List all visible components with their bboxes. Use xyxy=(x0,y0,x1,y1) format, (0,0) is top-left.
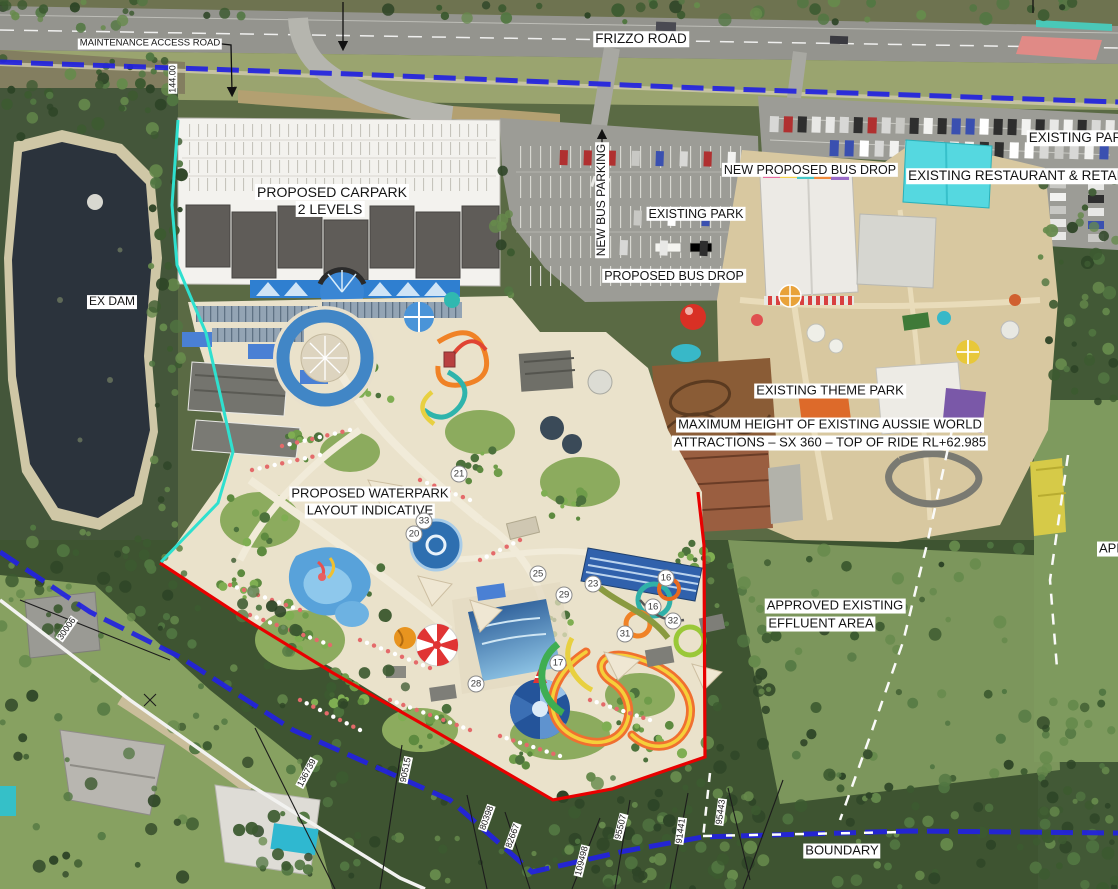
kids-pool-2 xyxy=(335,601,369,627)
round-ride xyxy=(588,370,612,394)
label-max-height-line2: ATTRACTIONS – SX 360 – TOP OF RIDE RL+62… xyxy=(672,436,988,451)
teal-dome xyxy=(444,292,460,308)
ride-marker-20: 20 xyxy=(406,526,423,543)
ride-marker-23: 23 xyxy=(585,576,602,593)
ride-marker-21: 21 xyxy=(451,466,468,483)
orange-ball xyxy=(394,627,416,649)
red-ball-ride xyxy=(680,304,706,330)
teal-ride xyxy=(937,311,951,325)
site-plan-canvas: MAINTENANCE ACCESS ROADFRIZZO ROADEXISTI… xyxy=(0,0,1118,889)
swimming-pool xyxy=(0,786,16,816)
ride-marker-32: 32 xyxy=(665,613,682,630)
ex-dam-water xyxy=(12,142,152,518)
label-existing-restaurant-retail: EXISTING RESTAURANT & RETAIL xyxy=(906,168,1118,184)
label-max-height-line1: MAXIMUM HEIGHT OF EXISTING AUSSIE WORLD xyxy=(676,418,984,433)
car-on-road xyxy=(830,36,848,45)
white-tent xyxy=(829,339,843,353)
label-existing-park-ne: EXISTING PARK xyxy=(1027,130,1118,146)
label-proposed-bus-drop: PROPOSED BUS DROP xyxy=(602,269,746,283)
car-on-road xyxy=(656,22,676,32)
ride-marker-31: 31 xyxy=(617,626,634,643)
label-maintenance-access-road: MAINTENANCE ACCESS ROAD xyxy=(78,39,222,50)
service-building xyxy=(188,362,288,416)
label-new-bus-parking: NEW BUS PARKING xyxy=(595,142,609,258)
label-existing-theme-park: EXISTING THEME PARK xyxy=(754,384,906,399)
label-ex-dam: EX DAM xyxy=(87,295,137,309)
ex-dam-area xyxy=(4,130,162,530)
label-proposed-carpark-line1: PROPOSED CARPARK xyxy=(255,184,409,200)
retail-building xyxy=(857,214,936,288)
bus xyxy=(655,243,681,252)
label-approved-effluent-line2: EFFLUENT AREA xyxy=(766,617,875,632)
ride-marker-28: 28 xyxy=(468,676,485,693)
ride-marker-25: 25 xyxy=(530,566,547,583)
ride-marker-16: 16 xyxy=(645,599,662,616)
dimension-label: 144.00 xyxy=(168,64,177,94)
white-tent xyxy=(807,324,825,342)
label-new-proposed-bus-drop: NEW PROPOSED BUS DROP xyxy=(722,163,898,177)
pond xyxy=(671,344,701,362)
label-boundary: BOUNDARY xyxy=(803,844,880,859)
label-approved-clipped-right: APP xyxy=(1097,542,1118,557)
tank xyxy=(562,434,582,454)
label-existing-park-mid: EXISTING PARK xyxy=(647,207,746,221)
gray-deck xyxy=(768,464,803,524)
label-frizzo-road: FRIZZO ROAD xyxy=(593,31,689,47)
striped-awning xyxy=(764,296,854,305)
tank xyxy=(540,416,564,440)
label-approved-effluent-line1: APPROVED EXISTING xyxy=(765,599,906,614)
slide-tower xyxy=(444,352,455,367)
label-proposed-carpark-line2: 2 LEVELS xyxy=(296,201,365,217)
ride-marker-29: 29 xyxy=(556,587,573,604)
ride-marker-16: 16 xyxy=(658,570,675,587)
ride-marker-17: 17 xyxy=(550,655,567,672)
label-proposed-waterpark-line1: PROPOSED WATERPARK xyxy=(289,487,450,502)
